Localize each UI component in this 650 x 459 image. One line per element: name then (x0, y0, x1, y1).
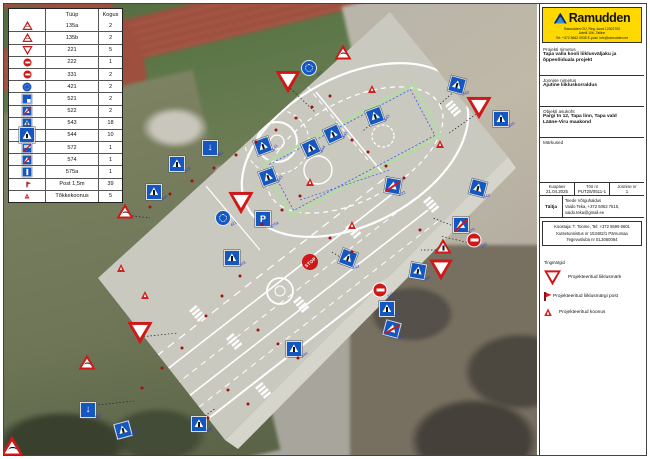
slash-sign-icon (22, 155, 32, 165)
slash-sign-icon (22, 106, 32, 116)
legend-row: 4212 (9, 80, 122, 92)
legend-header-type: Tüüp (45, 9, 98, 20)
legend-row: 5741 (9, 153, 122, 165)
post-sign-icon (227, 389, 230, 392)
warn-glyph (8, 447, 16, 454)
gw-sign-icon: 221 (466, 97, 492, 120)
legend-icon-cell (9, 93, 45, 104)
rb-sign-icon (22, 82, 32, 92)
sign-code-label: 521 (94, 411, 102, 419)
cw-sign-icon: 543 (447, 75, 467, 95)
legend-icon-cell (9, 142, 45, 153)
sign-quantity-table: Tüüp Kogus 135a2135b22215222133124212521… (8, 8, 123, 203)
post-sign-icon (169, 193, 172, 196)
cone-sign-icon (368, 85, 376, 93)
drawing-name-section: Joonise nimetus Ajutine liikluskorraldus (540, 76, 644, 107)
post-sign-icon (329, 95, 332, 98)
legend-row: Post 1,5m39 (9, 178, 122, 190)
legend-row: 5222 (9, 105, 122, 117)
gw-sign-icon: 221 (127, 322, 153, 345)
post-sign-icon (329, 237, 332, 240)
cw-sign-icon: 543 (365, 106, 386, 127)
executor-label: Täitja (540, 196, 563, 217)
aerial-photo-trees (120, 95, 230, 160)
sign-code-label: 135b (133, 212, 143, 221)
post-sign-icon (221, 295, 224, 298)
author-line: Koostaja: T. Toome, Tel: +372 5599 6601 (545, 224, 639, 230)
post-sign-icon (247, 403, 250, 406)
legend-sign-code: 421 (45, 81, 98, 92)
sign-code-label: 543 (276, 174, 284, 182)
gw-sign-icon: 221 (228, 192, 254, 215)
cone-sign-icon (25, 194, 30, 199)
cw-sign-icon: 543 (338, 248, 359, 269)
company-logo-box: Ramudden Ramudden OÜ, Reg. kood 12302700… (542, 7, 642, 43)
legend-sign-code: 222 (45, 57, 98, 68)
post-sign-icon (235, 154, 238, 157)
post-sign-icon (351, 251, 354, 254)
post-sign-icon (277, 343, 280, 346)
post-sign-icon (297, 357, 300, 360)
cw-sign-icon: 543 (258, 167, 279, 188)
sheetnr-cell: Joonise nr 1 (610, 183, 644, 196)
cw-sign-icon: 543 (379, 301, 395, 317)
cone-sign-icon (141, 291, 149, 299)
cw-sign-icon: 543 (322, 123, 343, 144)
date-value: 21.04.2025 (540, 189, 574, 195)
legend-sign-qty: 1 (98, 154, 122, 165)
park-glyph: P (256, 212, 270, 226)
legend-icon-cell (9, 106, 45, 117)
cw-sign-icon: 543 (113, 420, 133, 440)
post-sign-icon (351, 139, 354, 142)
legend-header-qty: Kogus (98, 9, 122, 20)
warn-glyph (122, 212, 128, 217)
cw-sign-icon: 544 (191, 416, 207, 432)
post-sign-icon (403, 177, 406, 180)
legend-header-row: Tüüp Kogus (9, 9, 122, 20)
cw-sign-icon: 544 (493, 111, 509, 127)
legend-sign-qty: 39 (98, 179, 122, 190)
sign-code-label: 221 (300, 84, 313, 96)
legend-icon-cell (9, 130, 45, 141)
author-box: Koostaja: T. Toome, Tel: +372 5599 6601 … (542, 221, 642, 246)
legend-sign-qty: 2 (98, 20, 122, 31)
rb-sign-icon: 421 (301, 60, 317, 76)
sign-code-label: 543 (271, 143, 279, 151)
legend-icon-cell (9, 154, 45, 165)
rb-sign-icon: 421 (215, 210, 231, 226)
gw-sign-icon (544, 270, 561, 285)
legend-icon-cell (9, 57, 45, 68)
noentry-sign-icon (22, 58, 31, 67)
stop-glyph: STOP (303, 256, 316, 268)
sign-code-label: 221 (152, 335, 165, 347)
sign-code-label: 543 (130, 428, 138, 436)
project-line2: õppesõiduala projekt (543, 58, 592, 63)
map-legend-item-label: Projekteeritud liiklusmärgi post (553, 294, 618, 299)
legend-sign-code: Post 1,5m (45, 179, 98, 190)
legend-sign-code: 135a (45, 20, 98, 31)
sign-code-label: 543 (183, 165, 191, 173)
park-sign-icon: P575a (255, 211, 271, 227)
post-sign-icon (207, 417, 210, 420)
legend-sign-qty: 5 (98, 191, 122, 202)
legend-sign-qty: 10 (98, 130, 122, 141)
ramudden-triangle-icon (554, 13, 567, 24)
cw-sign-icon: 544 (409, 262, 428, 281)
legend-icon-cell (9, 20, 45, 31)
post-sign-icon (419, 229, 422, 232)
legend-table-body: 135a2135b2221522213312421252125222543185… (9, 20, 122, 202)
cw-sign-icon: 543 (224, 250, 240, 266)
drawing-name: Ajutine liikluskorraldus (543, 83, 641, 89)
info-grid: Kuupäev 21.04.2025 Töö nr PUT25/0511-1 J… (540, 183, 644, 197)
warn-sign-icon: 135a (335, 45, 352, 60)
slash-sign-icon: 522 (382, 319, 402, 339)
legend-row: 2221 (9, 56, 122, 68)
legend-icon-cell (9, 81, 45, 92)
cw-sign-icon: 543 (253, 136, 274, 157)
legend-sign-code: 522 (45, 106, 98, 117)
warn-sign-icon (22, 33, 33, 42)
legend-icon-cell (9, 179, 45, 190)
cw-sign-icon: 543 (468, 178, 488, 198)
legend-sign-qty: 2 (98, 106, 122, 117)
post-sign-icon (239, 275, 242, 278)
legend-header-icon-col (9, 9, 45, 20)
project-line1: Tapa valla kooli liiklusväljaku ja (543, 52, 616, 57)
sign-code-label: 544 (205, 425, 213, 433)
cone-sign-icon (436, 140, 444, 148)
sign-code-label: 421 (315, 69, 323, 77)
legend-row: 135b2 (9, 31, 122, 43)
legend-sign-code: 135b (45, 32, 98, 43)
warn-sign-icon: 135b (117, 204, 134, 219)
cone-sign-icon (306, 178, 314, 186)
post-sign-icon (191, 180, 194, 183)
map-legend-item-label: Projekteeritud koonus (559, 310, 605, 315)
date-cell: Kuupäev 21.04.2025 (540, 183, 575, 196)
legend-icon-cell (9, 191, 45, 202)
legend-sign-qty: 2 (98, 69, 122, 80)
sign-code-label: 543 (483, 192, 491, 199)
b521-sign-icon (22, 94, 32, 104)
post-sign-icon (295, 117, 298, 120)
legend-row: 54410 (9, 129, 122, 141)
arrow-glyph: ↓ (203, 141, 217, 155)
postflag-sign-icon (26, 181, 27, 187)
map-symbol-legend: Tingmärgid Projekteeritud liiklusmärkPro… (544, 260, 640, 316)
sign-code-label: 543 (383, 113, 391, 121)
legend-row: 2215 (9, 44, 122, 56)
warn-glyph (84, 363, 90, 368)
post-sign-icon (149, 206, 152, 209)
sign-code-label: 544 (300, 350, 308, 358)
aerial-photo-pavement (342, 4, 537, 328)
sign-code-label: 135b (451, 247, 461, 256)
sign-code-label: 543 (393, 310, 401, 318)
warn-glyph (340, 53, 346, 58)
map-legend-items: Projekteeritud liiklusmärkProjekteeritud… (544, 270, 640, 316)
sign-code-label: 543 (462, 89, 470, 96)
legend-sign-code: 543 (45, 118, 98, 129)
post-sign-icon (141, 387, 144, 390)
cone-sign-icon (348, 221, 356, 229)
post-sign-icon (299, 195, 302, 198)
sign-code-label: 575a (269, 220, 279, 229)
notes-label: Märkused (543, 140, 641, 145)
warn-sign-icon: 135b (435, 239, 452, 254)
post-sign-icon (255, 141, 258, 144)
legend-row: 575a1 (9, 165, 122, 177)
map-legend-title: Tingmärgid (544, 260, 640, 265)
legend-sign-qty: 5 (98, 45, 122, 56)
noentry-sign-icon: 222 (373, 283, 388, 298)
b572-sign-icon (22, 143, 32, 153)
sign-code-label: 543 (238, 259, 246, 267)
gw-sign-icon: 221 (429, 260, 453, 281)
legend-sign-qty: 18 (98, 118, 122, 129)
b575-sign-icon (22, 167, 32, 177)
map-legend-item: Projekteeritud liiklusmärgi post (544, 292, 640, 301)
sign-code-label: 544 (423, 274, 431, 281)
sign-code-label: 544 (319, 144, 327, 152)
sign-code-label: 222 (480, 241, 488, 249)
arrow-sign-icon: ↓521 (80, 402, 96, 418)
sign-code-label: 521 (216, 149, 224, 157)
slash-sign-icon: 522 (384, 177, 403, 196)
map-legend-item: Projekteeritud liiklusmärk (544, 270, 640, 285)
sign-code-label: 221 (452, 272, 464, 283)
legend-sign-qty: 1 (98, 142, 122, 153)
executor-row: Täitja Teede Võrguhaldus Vaido Teka, +37… (540, 196, 644, 218)
sign-code-label: 522 (398, 189, 406, 196)
sign-code-label: 135a (351, 53, 361, 62)
post-sign-icon (311, 106, 314, 109)
warn-glyph (442, 246, 444, 251)
warn-sign-icon (22, 21, 33, 30)
warn-sign-icon: 135a (79, 355, 96, 370)
legend-sign-qty: 1 (98, 166, 122, 177)
sign-code-label: 421 (229, 219, 237, 227)
sign-code-label: 543 (352, 263, 360, 270)
legend-sign-code: 544 (45, 130, 98, 141)
post-sign-icon (257, 329, 260, 332)
sign-code-label: 135a (95, 363, 105, 372)
cone-sign-icon (544, 308, 552, 316)
company-contact: Tel: +372 5662 0935 E-post: info@ramudde… (545, 36, 639, 40)
sign-code-label: 222 (386, 291, 394, 299)
arrow-sign-icon: ↓521 (202, 140, 218, 156)
legend-sign-code: 575a (45, 166, 98, 177)
sign-code-label: 522 (397, 333, 405, 340)
stop-sign-icon: STOP (299, 251, 322, 274)
arrow-glyph: ↓ (81, 403, 95, 417)
cw-sign-icon: 543 (169, 156, 185, 172)
project-name-section: Projekti nimetus Tapa valla kooli liiklu… (540, 45, 644, 76)
legend-row: 5212 (9, 92, 122, 104)
legend-icon-cell (9, 166, 45, 177)
legend-icon-cell (9, 32, 45, 43)
cw-sign-icon: 544 (146, 184, 162, 200)
post-sign-icon (281, 209, 284, 212)
legend-sign-code: 572 (45, 142, 98, 153)
warn-sign-icon: 135a (4, 436, 24, 456)
sign-code-label: 574 (467, 226, 475, 234)
worknr-cell: Töö nr PUT25/0511-1 (575, 183, 610, 196)
legend-row: Tõkkekoonus5 (9, 190, 122, 202)
sign-code-label: 544 (160, 193, 168, 201)
aerial-photo-trees-dark (350, 245, 537, 455)
notes-section: Märkused (540, 138, 644, 183)
noentry-sign-icon: 222 (467, 233, 482, 248)
map-legend-item: Projekteeritud koonus (544, 308, 640, 316)
legend-sign-code: 221 (45, 45, 98, 56)
map-legend-item-label: Projekteeritud liiklusmärk (568, 275, 621, 280)
cw-sign-icon (19, 127, 35, 143)
legend-sign-qty: 1 (98, 57, 122, 68)
sign-code-label: 221 (253, 205, 266, 217)
legend-row: 3312 (9, 68, 122, 80)
legend-sign-code: 574 (45, 154, 98, 165)
executor-email: vaido.teka@gmail.ee (565, 210, 642, 216)
post-sign-icon (385, 165, 388, 168)
location-line2: Lääne-Viru maakond (543, 120, 591, 125)
company-name: Ramudden (569, 11, 630, 25)
sheetnr-value: 1 (610, 189, 644, 195)
legend-row: 5721 (9, 141, 122, 153)
slash-sign-icon: 574 (453, 217, 469, 233)
worknr-value: PUT25/0511-1 (575, 189, 609, 195)
legend-sign-qty: 2 (98, 32, 122, 43)
cone-sign-icon (117, 264, 125, 272)
licence-line: Tegevusluba nr EL3060084 (545, 237, 639, 243)
noentry-sign-icon (22, 70, 31, 79)
title-block: Ramudden Ramudden OÜ, Reg. kood 12302700… (539, 4, 644, 455)
legend-sign-code: 521 (45, 93, 98, 104)
legend-row: 135a2 (9, 20, 122, 31)
warn-glyph (25, 38, 29, 41)
legend-sign-code: 331 (45, 69, 98, 80)
aerial-photo-bushes (4, 390, 230, 455)
legend-sign-code: Tõkkekoonus (45, 191, 98, 202)
gw-sign-icon (22, 46, 33, 55)
legend-sign-qty: 2 (98, 81, 122, 92)
legend-icon-cell (9, 45, 45, 56)
location-line1: Pargi tn 12, Tapa linn, Tapa vald (543, 114, 617, 119)
post-sign-icon (213, 167, 216, 170)
sign-code-label: 135a (23, 447, 37, 455)
postflag-sign-icon (544, 292, 546, 301)
sign-code-label: 543 (341, 130, 349, 138)
warn-glyph (25, 26, 29, 29)
cw-sign-icon: 544 (286, 341, 302, 357)
location-section: Objekti asukoht Pargi tn 12, Tapa linn, … (540, 107, 644, 138)
post-sign-icon (181, 347, 184, 350)
post-sign-icon (205, 315, 208, 318)
plan-sheet: 135a421221543221544543543544543↓52154354… (0, 0, 650, 459)
gw-sign-icon: 221 (275, 71, 301, 94)
post-sign-icon (367, 151, 370, 154)
sign-code-label: 544 (507, 120, 515, 128)
legend-sign-qty: 2 (98, 93, 122, 104)
sign-code-label: 221 (491, 110, 504, 122)
cw-sign-icon: 544 (300, 137, 321, 158)
post-sign-icon (161, 367, 164, 370)
post-sign-icon (275, 129, 278, 132)
legend-icon-cell (9, 69, 45, 80)
post-sign-icon (261, 223, 264, 226)
